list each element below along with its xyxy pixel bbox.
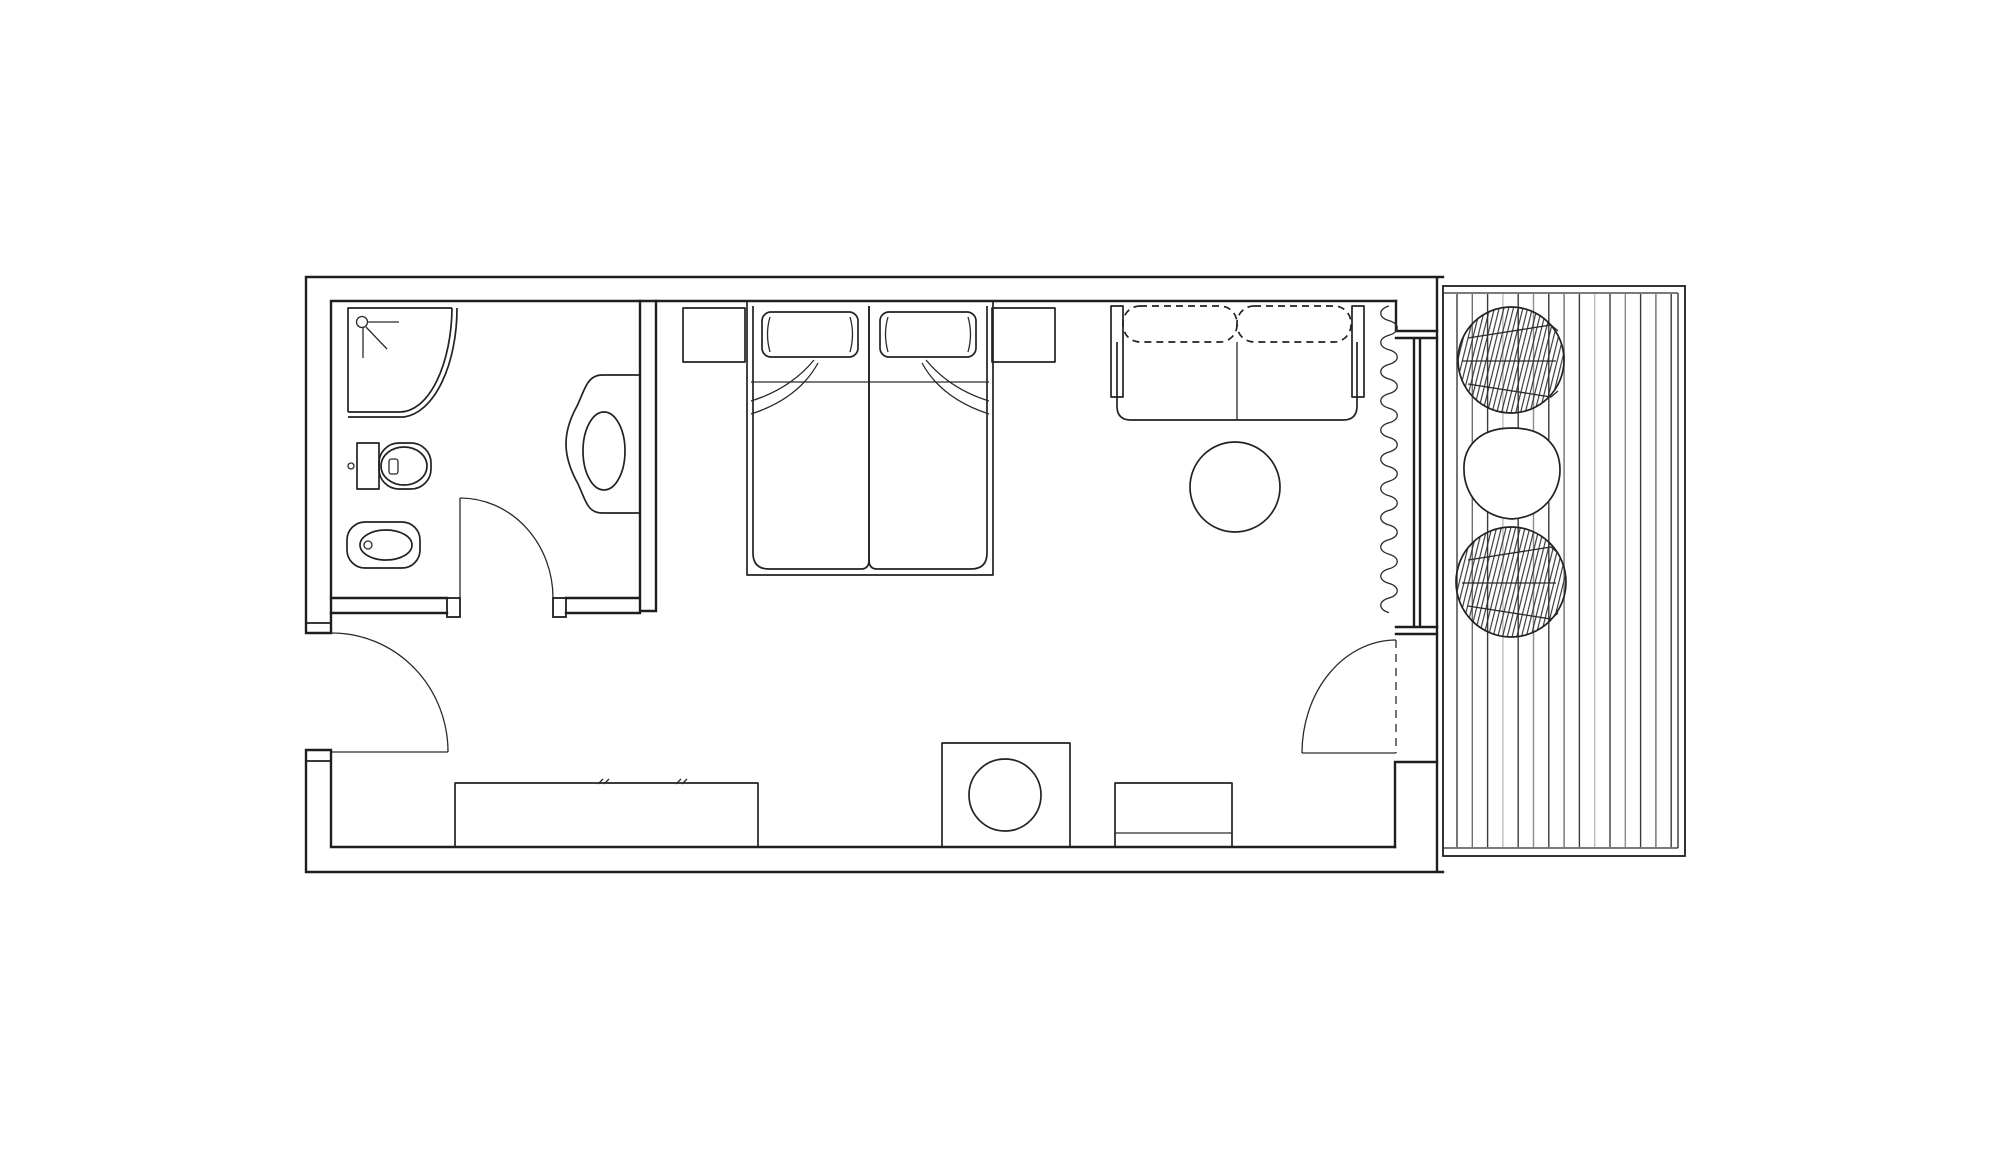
bench xyxy=(1115,783,1232,847)
terrace-deck xyxy=(1443,286,1685,856)
toilet xyxy=(348,443,431,489)
sofa-back-cushion-left xyxy=(1123,306,1237,342)
sofa-back-cushion-right xyxy=(1237,306,1351,342)
bathroom-fixtures xyxy=(347,308,640,568)
balcony-door xyxy=(1302,640,1396,753)
vanity-basin xyxy=(583,412,625,490)
shower-enclosure xyxy=(348,308,457,417)
toilet-bowl xyxy=(381,447,427,485)
curtain-squiggle xyxy=(1381,306,1398,613)
low-counter xyxy=(455,779,758,847)
living-area xyxy=(1111,306,1397,613)
corner-shower xyxy=(348,308,457,417)
entry-door xyxy=(332,633,448,752)
toilet-body xyxy=(379,443,431,489)
terrace-chair-upper xyxy=(1458,307,1564,413)
flush-button xyxy=(348,463,354,469)
vanity-counter xyxy=(566,375,640,513)
chair-seat-circle xyxy=(1456,527,1566,637)
terrace-table xyxy=(1464,428,1560,519)
bed-linen-fold xyxy=(751,360,989,414)
floorplan-page: Studio hotel room floor plan with terrac… xyxy=(0,0,2000,1155)
toilet-drain xyxy=(389,459,398,474)
bottom-furniture xyxy=(455,743,1232,847)
bathroom-door xyxy=(460,498,553,598)
pillow-left xyxy=(762,312,858,357)
bidet xyxy=(347,522,420,568)
door-jamb-left xyxy=(447,598,460,617)
balcony-door-swing-arc xyxy=(1302,640,1396,753)
bidet-bowl xyxy=(360,530,412,560)
floorplan-drawing: Studio hotel room floor plan with terrac… xyxy=(0,0,2000,1155)
pillow-right xyxy=(880,312,976,357)
sofa-arm-right xyxy=(1352,306,1364,397)
bidet-body xyxy=(347,522,420,568)
bed-area xyxy=(683,301,1055,575)
nightstand-left xyxy=(683,308,745,362)
coffee-table-round xyxy=(1190,442,1280,532)
bed-frame xyxy=(747,301,993,575)
window-wall xyxy=(1395,301,1437,847)
entry-door-swing-arc xyxy=(332,633,448,752)
bidet-faucet xyxy=(364,541,372,549)
vanity xyxy=(566,375,640,513)
bathroom-door-swing-arc xyxy=(460,498,553,598)
sofa-two-seat xyxy=(1111,306,1364,420)
double-bed xyxy=(747,301,993,575)
wall-end-caps xyxy=(306,623,331,761)
cabinet-with-stool xyxy=(942,743,1070,847)
toilet-tank xyxy=(357,443,379,489)
terrace-chair-lower xyxy=(1456,527,1566,637)
door-jamb-right xyxy=(553,598,566,617)
nightstand-right xyxy=(992,308,1055,362)
doors xyxy=(332,498,1396,753)
shower-head-icon xyxy=(357,317,400,359)
stool-round xyxy=(969,759,1041,831)
